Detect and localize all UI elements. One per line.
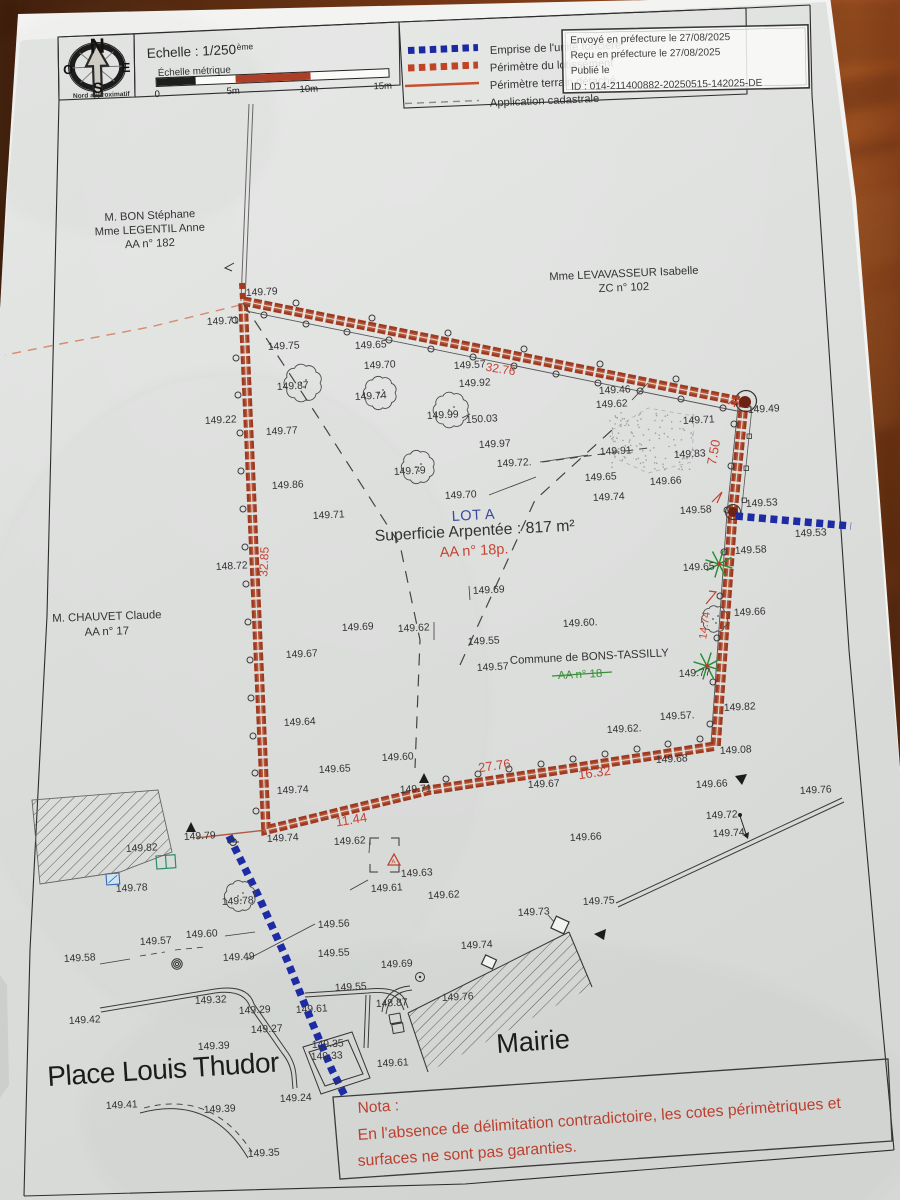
svg-text:149.63: 149.63 (401, 867, 434, 880)
svg-text:149.73: 149.73 (518, 906, 551, 919)
svg-text:149.57: 149.57 (477, 661, 510, 674)
svg-text:149.55: 149.55 (335, 981, 368, 994)
svg-text:149.74: 149.74 (713, 827, 746, 840)
svg-text:ème: ème (236, 41, 253, 52)
svg-text:149.69: 149.69 (342, 621, 375, 634)
svg-text:149.62: 149.62 (596, 398, 629, 411)
svg-text:149.71: 149.71 (313, 509, 346, 522)
svg-text:149.61: 149.61 (377, 1057, 410, 1070)
svg-text:149.67: 149.67 (286, 648, 319, 661)
svg-text:148.72: 148.72 (216, 560, 249, 573)
svg-text:149.49: 149.49 (748, 403, 781, 416)
svg-text:149.74: 149.74 (277, 784, 310, 797)
svg-text:149.58: 149.58 (680, 504, 713, 517)
svg-text:149.72: 149.72 (706, 809, 739, 822)
svg-text:149.60: 149.60 (382, 751, 415, 764)
svg-text:149.79: 149.79 (184, 830, 217, 843)
svg-text:E: E (121, 60, 131, 75)
svg-text:149.27: 149.27 (251, 1023, 284, 1036)
svg-text:149.56: 149.56 (318, 918, 351, 931)
svg-text:ZC n° 102: ZC n° 102 (598, 281, 649, 295)
svg-text:149.65: 149.65 (585, 471, 618, 484)
svg-text:149.66: 149.66 (570, 831, 603, 844)
svg-text:15m: 15m (373, 81, 392, 93)
svg-text:149.39: 149.39 (204, 1103, 237, 1116)
svg-text:149.75: 149.75 (268, 340, 301, 353)
svg-text:149.69: 149.69 (473, 584, 506, 597)
svg-text:149.57: 149.57 (454, 359, 487, 372)
svg-text:149.29: 149.29 (239, 1004, 272, 1017)
svg-text:149.78: 149.78 (116, 882, 149, 895)
svg-text:Publié le: Publié le (571, 65, 610, 77)
svg-text:149.82: 149.82 (724, 701, 757, 714)
svg-text:149.91: 149.91 (600, 445, 633, 458)
svg-text:149.67: 149.67 (528, 778, 561, 791)
svg-text:A: A (391, 859, 395, 865)
svg-text:149.92: 149.92 (459, 377, 492, 390)
svg-text:Mairie: Mairie (495, 1024, 570, 1059)
svg-text:5m: 5m (226, 86, 240, 98)
svg-text:149.53: 149.53 (795, 527, 828, 540)
svg-text:149.75: 149.75 (583, 895, 616, 908)
svg-text:149.61: 149.61 (371, 882, 404, 895)
svg-text:149.70: 149.70 (364, 359, 397, 372)
svg-text:149.42: 149.42 (69, 1014, 102, 1027)
svg-text:Nota :: Nota : (357, 1097, 399, 1117)
svg-text:149.57: 149.57 (140, 935, 173, 948)
svg-text:149.74: 149.74 (267, 832, 300, 845)
svg-text:149.46: 149.46 (599, 384, 632, 397)
svg-text:149.64: 149.64 (284, 716, 317, 729)
svg-text:149.62: 149.62 (398, 622, 431, 635)
svg-text:149.57.: 149.57. (660, 710, 695, 723)
svg-text:149.35: 149.35 (312, 1038, 345, 1051)
svg-text:149.53: 149.53 (746, 497, 779, 510)
svg-text:N: N (89, 35, 105, 59)
svg-text:149.60: 149.60 (186, 928, 219, 941)
svg-text:149.60.: 149.60. (563, 617, 598, 630)
svg-text:32.85: 32.85 (256, 546, 272, 577)
svg-text:149.97: 149.97 (479, 438, 512, 451)
svg-text:149.62.: 149.62. (607, 723, 642, 736)
svg-text:149.32: 149.32 (195, 994, 228, 1007)
svg-text:149.58: 149.58 (735, 544, 768, 557)
svg-text:149.66: 149.66 (734, 606, 767, 619)
svg-text:149.87: 149.87 (277, 380, 310, 393)
svg-text:149.41: 149.41 (106, 1099, 139, 1112)
svg-text:149.71: 149.71 (207, 315, 240, 328)
svg-text:149.65: 149.65 (683, 561, 716, 574)
svg-text:149.58: 149.58 (64, 952, 97, 965)
svg-text:149.83: 149.83 (674, 448, 707, 461)
svg-text:149.71: 149.71 (400, 783, 433, 796)
svg-text:149.62: 149.62 (428, 889, 461, 902)
svg-text:149.66: 149.66 (650, 475, 683, 488)
svg-text:149.68: 149.68 (656, 753, 689, 766)
svg-text:149.71: 149.71 (683, 414, 716, 427)
svg-text:149.65: 149.65 (319, 763, 352, 776)
svg-text:149.74: 149.74 (593, 491, 626, 504)
svg-text:10m: 10m (299, 84, 318, 96)
svg-text:149.77: 149.77 (266, 425, 299, 438)
svg-text:149.72.: 149.72. (497, 457, 532, 470)
svg-text:149.86: 149.86 (272, 479, 305, 492)
svg-text:AA n° 17: AA n° 17 (84, 625, 129, 639)
svg-text:149.70: 149.70 (445, 489, 478, 502)
svg-text:149.62: 149.62 (334, 835, 367, 848)
svg-text:149.99: 149.99 (427, 409, 460, 422)
svg-text:149.08: 149.08 (720, 744, 753, 757)
svg-text:149.35: 149.35 (248, 1147, 281, 1160)
svg-text:149.76: 149.76 (800, 784, 833, 797)
svg-text:0: 0 (154, 89, 160, 100)
svg-text:149.78: 149.78 (222, 895, 255, 908)
svg-text:149.61: 149.61 (296, 1003, 329, 1016)
svg-text:149.55: 149.55 (318, 947, 351, 960)
svg-text:149.55: 149.55 (468, 635, 501, 648)
svg-text:149.24: 149.24 (280, 1092, 313, 1105)
svg-text:149.74: 149.74 (461, 939, 494, 952)
svg-text:AA n° 182: AA n° 182 (125, 237, 175, 251)
svg-text:149.79: 149.79 (394, 465, 427, 478)
svg-text:149.69: 149.69 (381, 958, 414, 971)
svg-text:150.03: 150.03 (466, 413, 499, 426)
svg-text:149.77: 149.77 (679, 667, 712, 680)
svg-text:149.33: 149.33 (311, 1050, 344, 1063)
svg-text:149.79: 149.79 (246, 286, 279, 299)
svg-text:149.74: 149.74 (355, 390, 388, 403)
svg-text:O: O (63, 62, 74, 77)
svg-text:149.22: 149.22 (205, 414, 238, 427)
svg-text:149.66: 149.66 (696, 778, 729, 791)
svg-text:149.65: 149.65 (355, 339, 388, 352)
